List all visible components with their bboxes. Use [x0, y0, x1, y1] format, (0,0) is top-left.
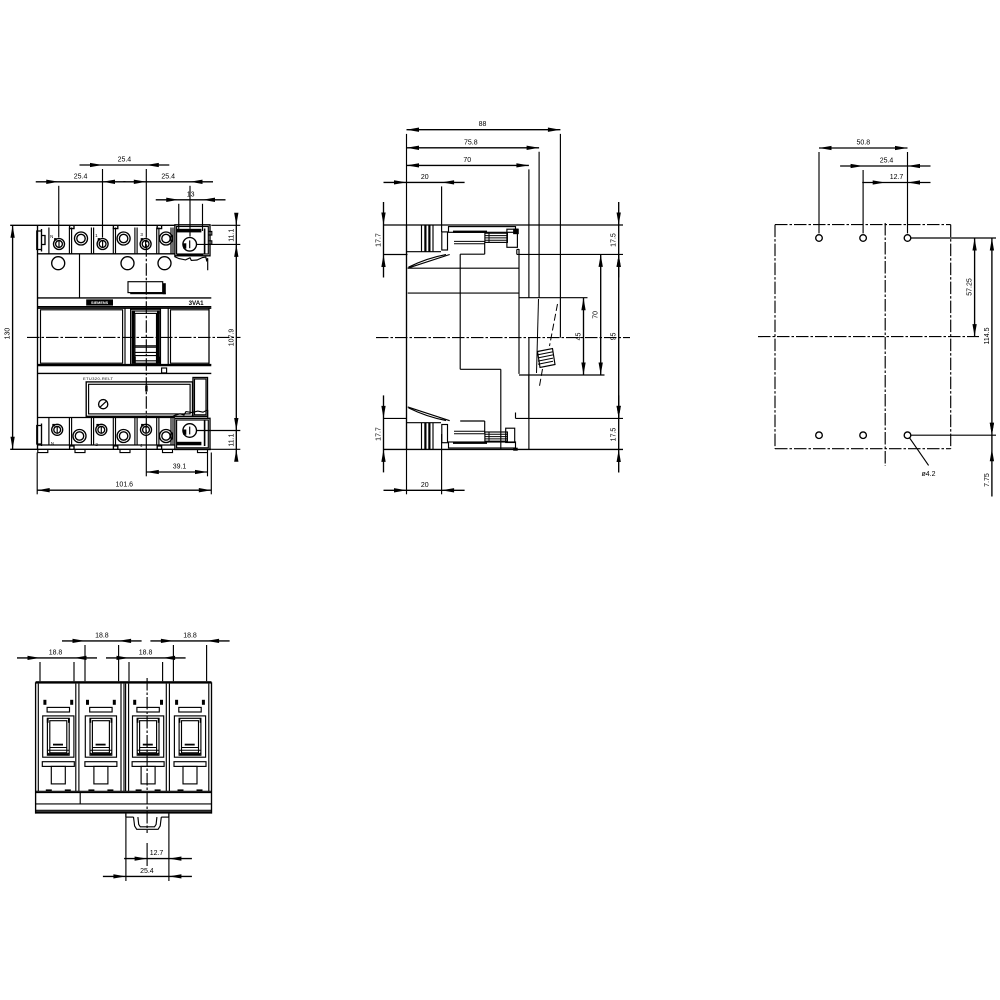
svg-text:25.4: 25.4: [140, 868, 154, 875]
svg-text:25.4: 25.4: [880, 158, 894, 165]
svg-text:95: 95: [611, 333, 618, 341]
svg-text:17.7: 17.7: [375, 233, 382, 247]
svg-text:130: 130: [4, 328, 11, 340]
svg-text:50.8: 50.8: [856, 140, 870, 147]
svg-text:3VA1: 3VA1: [189, 300, 205, 307]
svg-text:75.8: 75.8: [464, 139, 478, 146]
svg-text:11.1: 11.1: [229, 433, 236, 446]
svg-text:20: 20: [421, 482, 429, 489]
svg-text:101.6: 101.6: [116, 482, 134, 489]
svg-text:7.75: 7.75: [984, 473, 991, 487]
svg-text:107.9: 107.9: [229, 329, 236, 347]
svg-text:18.8: 18.8: [95, 632, 109, 639]
svg-text:12.7: 12.7: [150, 850, 164, 857]
svg-text:18.8: 18.8: [49, 649, 63, 656]
svg-text:ETU320-RELT: ETU320-RELT: [83, 376, 114, 381]
svg-text:114.5: 114.5: [984, 327, 991, 344]
svg-text:45: 45: [575, 333, 582, 341]
svg-text:17.5: 17.5: [611, 233, 618, 247]
svg-text:25.4: 25.4: [161, 173, 175, 180]
svg-text:57.25: 57.25: [967, 278, 974, 296]
svg-text:SIEMENS: SIEMENS: [91, 301, 109, 305]
svg-text:17.7: 17.7: [375, 427, 382, 441]
svg-text:18.8: 18.8: [183, 632, 197, 639]
svg-text:70: 70: [463, 157, 471, 164]
svg-text:25.4: 25.4: [74, 173, 88, 180]
svg-text:25.4: 25.4: [118, 157, 132, 164]
svg-text:N: N: [51, 441, 54, 446]
svg-text:70: 70: [593, 311, 600, 319]
svg-text:17.5: 17.5: [611, 428, 618, 442]
svg-text:ø4.2: ø4.2: [922, 471, 936, 478]
svg-text:18.8: 18.8: [139, 649, 153, 656]
svg-text:13: 13: [187, 191, 195, 198]
svg-text:12.7: 12.7: [890, 174, 904, 181]
svg-text:N: N: [50, 234, 53, 239]
svg-text:39.1: 39.1: [173, 464, 187, 471]
svg-text:11.1: 11.1: [229, 229, 236, 242]
svg-text:20: 20: [421, 174, 429, 181]
svg-text:88: 88: [479, 121, 487, 128]
